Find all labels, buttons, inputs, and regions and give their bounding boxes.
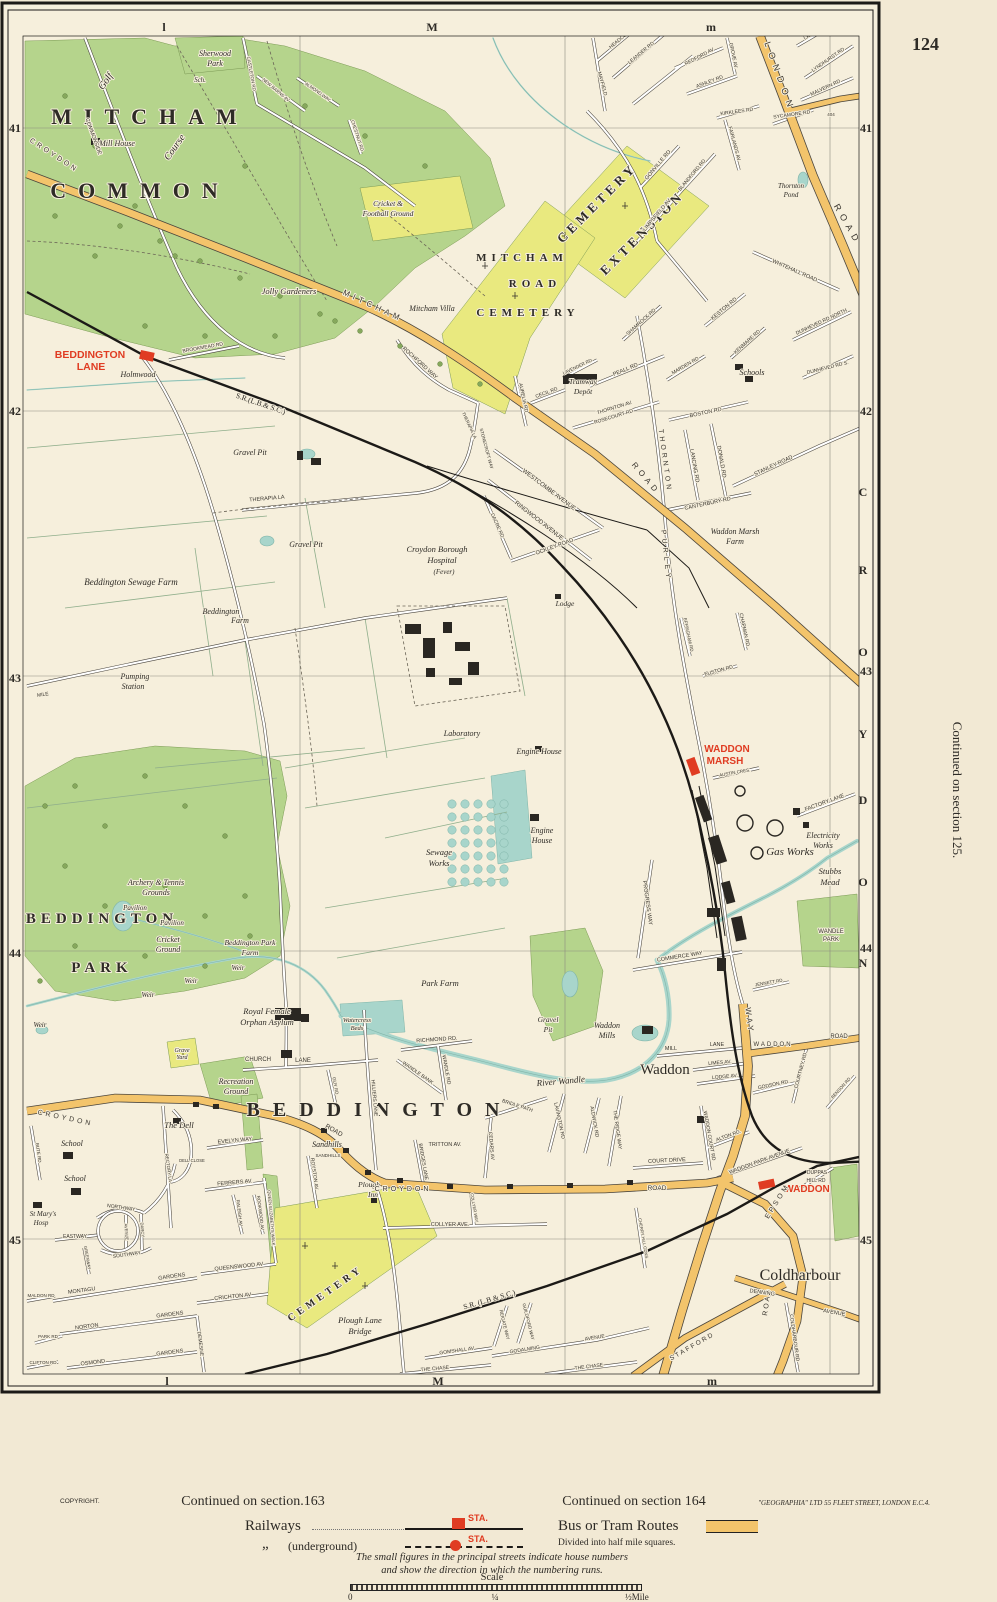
grid-number-left: 43 (9, 671, 21, 685)
map-label: MITCHAM (51, 104, 249, 129)
map-label: Gravel Pit (289, 540, 323, 549)
building (443, 622, 452, 633)
tree (318, 312, 323, 317)
legend-bus-swatch (706, 1520, 758, 1533)
building (423, 638, 435, 658)
building (717, 958, 726, 971)
tree (478, 382, 483, 387)
map-label: Ground (156, 945, 182, 954)
filter-bed (500, 865, 508, 873)
borough-letter: O (858, 875, 867, 889)
tree (183, 804, 188, 809)
water-area (491, 770, 532, 864)
map-label: ROAD (648, 1185, 667, 1192)
legend-note-line1: The small figures in the principal stree… (356, 1552, 628, 1563)
grid-letter-top: M (426, 20, 437, 34)
building (530, 814, 539, 821)
grid-number-left: 44 (9, 946, 21, 960)
grid-number-left: 41 (9, 121, 21, 135)
map-label: Archery & Tennis (127, 878, 184, 887)
map-label: Works (429, 858, 451, 868)
map-label: Schools (740, 368, 765, 377)
borough-letter: O (858, 645, 867, 659)
map-label: Sewage (426, 847, 452, 857)
green-area (25, 746, 290, 1001)
filter-bed (487, 800, 495, 808)
map-label: Pumping (120, 672, 150, 681)
filter-bed (487, 865, 495, 873)
filter-bed (448, 800, 456, 808)
legend-station-square (452, 1518, 465, 1529)
filter-bed (500, 826, 508, 834)
map-svg: MITCHAMCOMMONGolfCourseSherwoodParkSch.M… (0, 0, 881, 1394)
filter-bed (461, 813, 469, 821)
building (311, 458, 321, 465)
map-label: St Mary's (30, 1210, 57, 1218)
scale-bar (350, 1584, 642, 1591)
legend-divided-label: Divided into half mile squares. (558, 1538, 675, 1548)
map-label: Stubbs (819, 866, 842, 876)
pond (562, 971, 578, 997)
filter-bed (448, 839, 456, 847)
filter-bed (474, 800, 482, 808)
map-label: Waddon (640, 1062, 690, 1078)
map-label: Mills (598, 1031, 615, 1040)
tree (243, 894, 248, 899)
publisher-imprint: "GEOGRAPHIA" LTD 55 FLEET STREET, LONDON… (758, 1499, 930, 1507)
tree (203, 334, 208, 339)
building (405, 624, 421, 634)
map-label: LANE (295, 1058, 311, 1064)
tree (158, 239, 163, 244)
grid-number-right: 42 (860, 404, 872, 418)
legend-leader-line (312, 1529, 404, 1530)
building (33, 1202, 42, 1208)
building (63, 1152, 73, 1159)
map-label: WANDLE (818, 929, 843, 935)
map-label: HILL RD (807, 1178, 826, 1184)
legend-station-circle (450, 1540, 461, 1551)
map-label: Plough Lane (337, 1315, 382, 1325)
map-label: Jolly Gardeners (262, 286, 317, 296)
map-label: Watercress (343, 1017, 372, 1024)
filter-bed (474, 878, 482, 886)
map-label: ROAD (509, 278, 561, 290)
map-label: Farm (725, 537, 744, 546)
tree (223, 834, 228, 839)
filter-bed (500, 839, 508, 847)
filter-bed (461, 865, 469, 873)
map-label: Sandhills (312, 1140, 342, 1149)
grid-number-right: 45 (860, 1233, 872, 1247)
grid-number-left: 45 (9, 1233, 21, 1247)
map-label: Pond (783, 191, 799, 199)
tree (398, 344, 403, 349)
map-label: The Dell (164, 1120, 194, 1130)
tree (363, 134, 368, 139)
legend-sta-label-1: STA. (468, 1513, 488, 1523)
map-label: School (61, 1139, 84, 1148)
map-label: SANDHILLS (315, 1153, 340, 1158)
filter-bed (500, 800, 508, 808)
map-label: MARSH (707, 756, 744, 767)
filter-bed (487, 878, 495, 886)
filter-bed (448, 813, 456, 821)
filter-bed (487, 813, 495, 821)
map-label: Weir (34, 1021, 47, 1029)
map-label: Sherwood (199, 49, 232, 58)
filter-bed (500, 878, 508, 886)
map-label: Tramway (569, 377, 598, 386)
building (627, 1180, 633, 1185)
continuation-note-right: Continued on section 125. (949, 722, 965, 859)
continuation-note-bottom-left: Continued on section.163 (181, 1494, 325, 1510)
tree (43, 804, 48, 809)
filter-bed (487, 826, 495, 834)
map-label: MALDON RD (27, 1293, 55, 1298)
grid-number-right: 43 (860, 664, 872, 678)
map-label: Depôt (573, 387, 593, 396)
map-label: Farm (230, 616, 249, 625)
filter-bed (461, 826, 469, 834)
map-label: WADDON (704, 744, 750, 755)
map-label: Lodge (555, 599, 575, 608)
tree (173, 254, 178, 259)
map-label: Beddington Sewage Farm (84, 577, 178, 587)
borough-letter: N (859, 956, 868, 970)
filter-bed (474, 839, 482, 847)
map-label: Electricity (805, 831, 840, 840)
map-label: Mill House (98, 139, 135, 148)
map-label: Hospital (426, 555, 457, 565)
tree (103, 824, 108, 829)
map-label: Bridge (348, 1326, 371, 1336)
tree (203, 914, 208, 919)
scale-tick-quarter: ¼ (492, 1592, 499, 1602)
map-label: Gas Works (766, 846, 814, 858)
map-label: BEDDINGTON (26, 911, 178, 927)
building (449, 678, 462, 685)
grid-letter-bottom: M (432, 1374, 443, 1388)
map-label: DUPPAS (807, 1170, 828, 1176)
map-label: Recreation (218, 1077, 254, 1086)
map-label: CEMETERY (476, 307, 579, 319)
building (567, 1183, 573, 1188)
map-label: LANE (77, 361, 106, 373)
tree (143, 954, 148, 959)
map-label: Park (206, 59, 223, 68)
map-label: 404 (827, 112, 835, 117)
tree (93, 254, 98, 259)
tree (53, 214, 58, 219)
legend-sta-label-2: STA. (468, 1534, 488, 1544)
building (793, 808, 800, 815)
filter-bed (461, 839, 469, 847)
tree (133, 204, 138, 209)
map-canvas: MITCHAMCOMMONGolfCourseSherwoodParkSch.M… (0, 0, 881, 1399)
tree (438, 362, 443, 367)
map-label: Mitcham Villa (408, 304, 454, 313)
tree (358, 329, 363, 334)
grid-number-right: 44 (860, 941, 872, 955)
tree (333, 319, 338, 324)
map-label: Orphan Asylum (240, 1017, 293, 1027)
building (365, 1170, 371, 1175)
filter-bed (448, 826, 456, 834)
legend-railways-label: Railways (245, 1518, 301, 1535)
map-label: School (64, 1174, 87, 1183)
legend-underground-line (405, 1546, 523, 1548)
map-label: Sch. (194, 76, 206, 84)
map-label: PARK (71, 960, 132, 976)
legend-underground-ditto: „ (262, 1536, 269, 1553)
tree (118, 224, 123, 229)
map-label: Waddon (594, 1021, 620, 1030)
map-label: Gravel (538, 1015, 559, 1024)
building (297, 451, 303, 460)
map-label: Beds (351, 1025, 364, 1032)
map-label: WADDON (753, 1042, 792, 1048)
map-label: Cricket (156, 935, 180, 944)
grid-letter-bottom: m (707, 1374, 717, 1388)
map-label: Weir (185, 977, 198, 985)
map-label: MILL (665, 1046, 677, 1052)
tree (243, 164, 248, 169)
map-label: CHURCH (245, 1057, 271, 1063)
filter-bed (474, 826, 482, 834)
map-label: Holmwood (119, 370, 156, 379)
map-label: PARK RD (38, 1334, 58, 1339)
building (642, 1026, 653, 1034)
filter-bed (474, 813, 482, 821)
borough-letter: Y (859, 727, 868, 741)
map-label: CLIFTON RD (30, 1360, 58, 1365)
building (447, 1184, 453, 1189)
map-label: Waddon Marsh (711, 527, 760, 536)
map-label: LANE (710, 1042, 725, 1048)
map-label: Weir (232, 964, 245, 972)
building (803, 822, 809, 828)
map-label: PARK (823, 937, 839, 943)
legend-scale-label: Scale (481, 1572, 504, 1583)
grid-letter-top: m (706, 20, 716, 34)
map-label: Station (122, 682, 145, 691)
building (397, 1178, 403, 1183)
grid-number-left: 42 (9, 404, 21, 418)
filter-bed (461, 800, 469, 808)
continuation-note-bottom-right: Continued on section 164 (562, 1494, 706, 1510)
page-number: 124 (912, 34, 939, 55)
borough-letter: R (859, 563, 868, 577)
filter-bed (487, 852, 495, 860)
tree (203, 964, 208, 969)
building (343, 1148, 349, 1153)
map-label: (Fever) (434, 568, 456, 576)
tree (238, 276, 243, 281)
map-label: Farm (241, 948, 259, 957)
tree (423, 164, 428, 169)
building (426, 668, 435, 677)
building (213, 1104, 219, 1109)
map-label: CROYDON (375, 1186, 432, 1193)
legend-bus-label: Bus or Tram Routes (558, 1518, 678, 1535)
map-label: COLLYER AVE. (431, 1222, 470, 1228)
grid-number-right: 41 (860, 121, 872, 135)
map-label: DELL CLOSE (179, 1158, 205, 1163)
map-label: Pit (543, 1025, 554, 1034)
map-label: Pavilion (122, 904, 147, 912)
scale-tick-0: 0 (348, 1592, 353, 1602)
map-label: Park Farm (420, 978, 459, 988)
map-label: EASTWAY (63, 1234, 88, 1240)
map-label: Ground (224, 1087, 250, 1096)
filter-bed (461, 878, 469, 886)
filter-bed (500, 852, 508, 860)
tree (143, 324, 148, 329)
map-label: COMMON (50, 178, 230, 203)
map-label: Hosp (33, 1219, 49, 1227)
copyright-note: COPYRIGHT. (60, 1498, 100, 1505)
map-label: BEDDINGTON (55, 349, 125, 361)
map-label: Croydon Borough (407, 544, 468, 554)
map-label: TRITTON AV. (429, 1142, 462, 1148)
map-label: Engine (530, 826, 554, 835)
tree (303, 104, 308, 109)
map-label: Mead (819, 877, 840, 887)
borough-letter: D (859, 793, 868, 807)
building (193, 1102, 199, 1107)
tree (73, 944, 78, 949)
building (71, 1188, 81, 1195)
tree (103, 904, 108, 909)
building (507, 1184, 513, 1189)
filter-bed (487, 839, 495, 847)
filter-bed (474, 865, 482, 873)
borough-letter: C (859, 485, 868, 499)
filter-bed (448, 878, 456, 886)
map-label: Engine House (515, 747, 562, 756)
tree (38, 979, 43, 984)
tree (63, 864, 68, 869)
map-label: Weir (142, 991, 155, 999)
map-label: Works (813, 841, 833, 850)
map-label: Pavilion (159, 919, 184, 927)
building (707, 908, 720, 917)
tree (73, 784, 78, 789)
map-label: Coldharbour (760, 1267, 842, 1284)
building (301, 1014, 309, 1022)
map-label: Yard (177, 1055, 189, 1061)
map-label: Grave (175, 1048, 190, 1054)
map-label: Royal Female (242, 1006, 291, 1016)
map-label: Thornton (778, 182, 805, 190)
map-label: WADDON (784, 1184, 830, 1195)
map-label: MITCHAM (476, 252, 568, 264)
filter-bed (500, 813, 508, 821)
filter-bed (474, 852, 482, 860)
tree (198, 259, 203, 264)
map-label: Cricket & (373, 199, 403, 208)
pond (260, 536, 274, 546)
legend-underground-label: (underground) (288, 1539, 357, 1554)
scale-tick-half: ½Mile (625, 1592, 649, 1602)
tree (63, 94, 68, 99)
map-label: Gravel Pit (233, 448, 267, 457)
building (468, 662, 479, 675)
map-label: Football Ground (362, 209, 414, 218)
map-label: House (531, 836, 553, 845)
map-label: Laboratory (443, 729, 481, 738)
tree (273, 334, 278, 339)
green-area (830, 1164, 859, 1241)
map-label: ROAD (830, 1034, 848, 1040)
map-label: Beddington Park (224, 938, 276, 947)
building (455, 642, 470, 651)
building (281, 1050, 292, 1058)
map-label: Beddington (203, 607, 240, 616)
map-label: Grounds (142, 888, 170, 897)
tree (143, 774, 148, 779)
map-stage: Continued on section 108 124 Continued o… (0, 0, 997, 1600)
filter-bed (461, 852, 469, 860)
